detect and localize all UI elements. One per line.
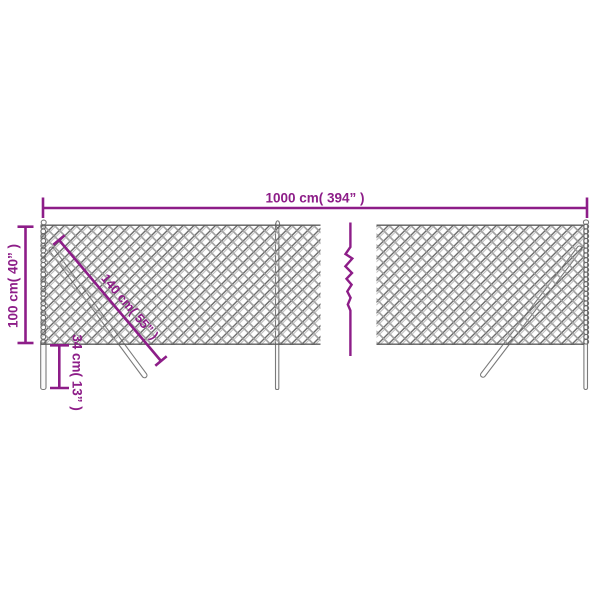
svg-text:100 cm( 40” ): 100 cm( 40” ) [6, 244, 21, 328]
svg-text:34 cm( 13” ): 34 cm( 13” ) [70, 334, 85, 411]
svg-text:1000 cm( 394” ): 1000 cm( 394” ) [265, 191, 364, 206]
